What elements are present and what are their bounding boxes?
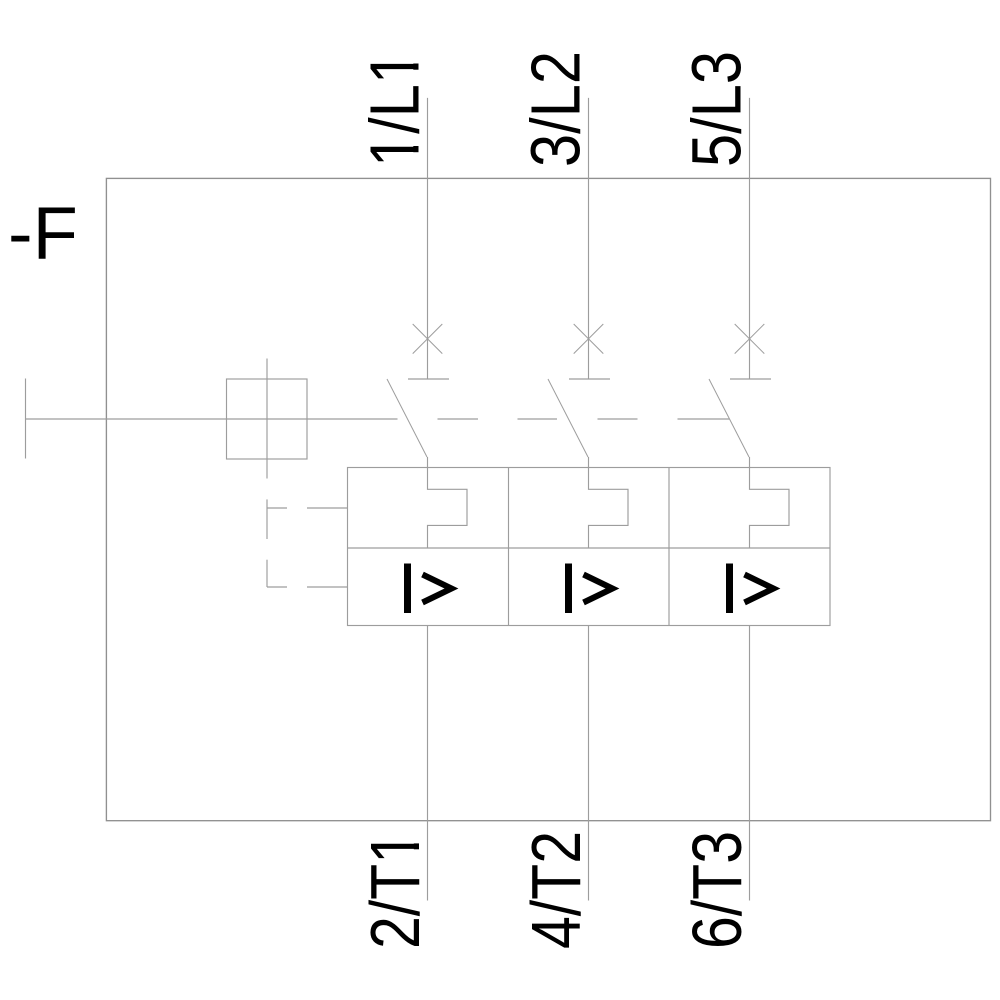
svg-text:2/T1: 2/T1 bbox=[356, 831, 434, 949]
svg-text:4/T2: 4/T2 bbox=[517, 831, 595, 949]
svg-text:5/L3: 5/L3 bbox=[678, 51, 756, 167]
svg-text:6/T3: 6/T3 bbox=[678, 831, 756, 949]
svg-text:-F: -F bbox=[8, 192, 78, 275]
svg-text:3/L2: 3/L2 bbox=[517, 51, 595, 167]
svg-text:1/L1: 1/L1 bbox=[356, 51, 434, 167]
